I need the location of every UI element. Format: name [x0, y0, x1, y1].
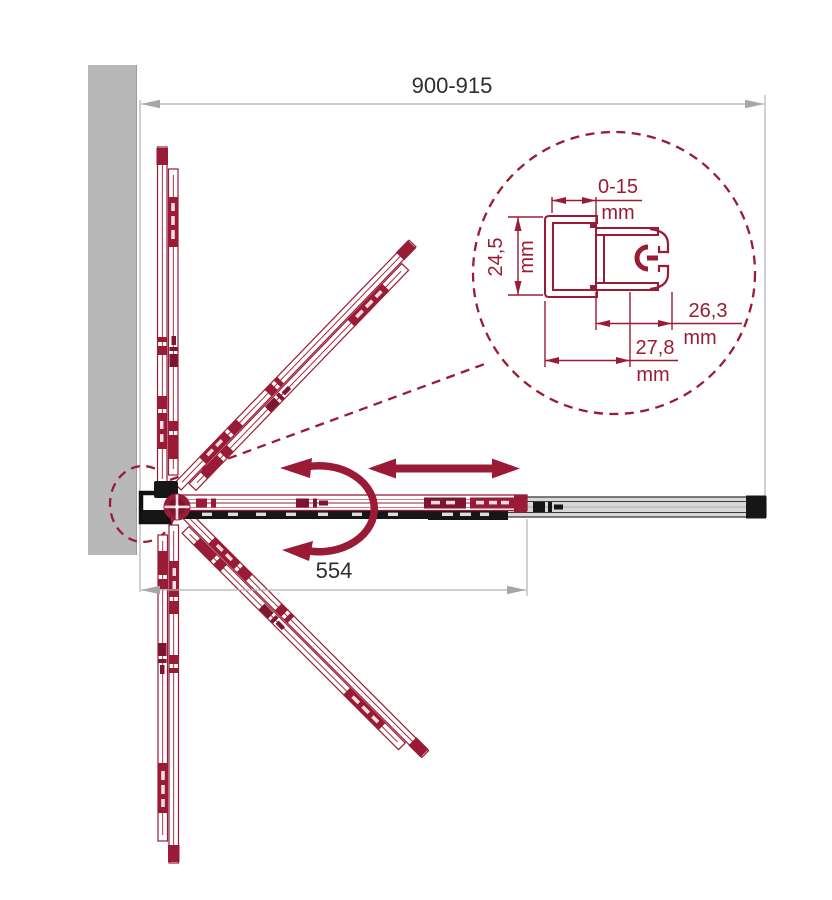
gap-unit: mm [601, 202, 634, 224]
detail-dim-depth: 24,5 mm [485, 217, 543, 295]
inner-value: 26,3 [689, 300, 728, 322]
depth-value: 24,5 [485, 238, 507, 277]
inner-unit: mm [683, 327, 716, 349]
technical-drawing-canvas: 900-915 [0, 0, 832, 900]
door-leading-edge-cap [514, 496, 527, 513]
shower-door-diagram: 900-915 [0, 0, 832, 900]
depth-unit: mm [516, 240, 538, 273]
glass-clip-profile [637, 247, 648, 269]
outer-unit: mm [636, 364, 669, 386]
open-width-label: 554 [316, 558, 353, 583]
door-panel-folded-down [158, 525, 180, 863]
slide-arrow-icon [368, 459, 520, 479]
overall-width-label: 900-915 [412, 73, 493, 98]
detail-callout: 0-15 mm 24,5 mm 26,3 mm [473, 132, 755, 414]
outer-value: 27,8 [636, 337, 675, 359]
door-panel-folded-up [157, 147, 179, 485]
profile-cross-section [545, 216, 668, 297]
folding-door-open-panel [168, 495, 527, 513]
rail-end-cap [746, 496, 766, 519]
gap-value: 0-15 [598, 176, 638, 198]
wall [88, 65, 137, 555]
door-panel-diagonal-up [174, 239, 425, 497]
detail-dim-outer: 27,8 mm [545, 292, 678, 386]
